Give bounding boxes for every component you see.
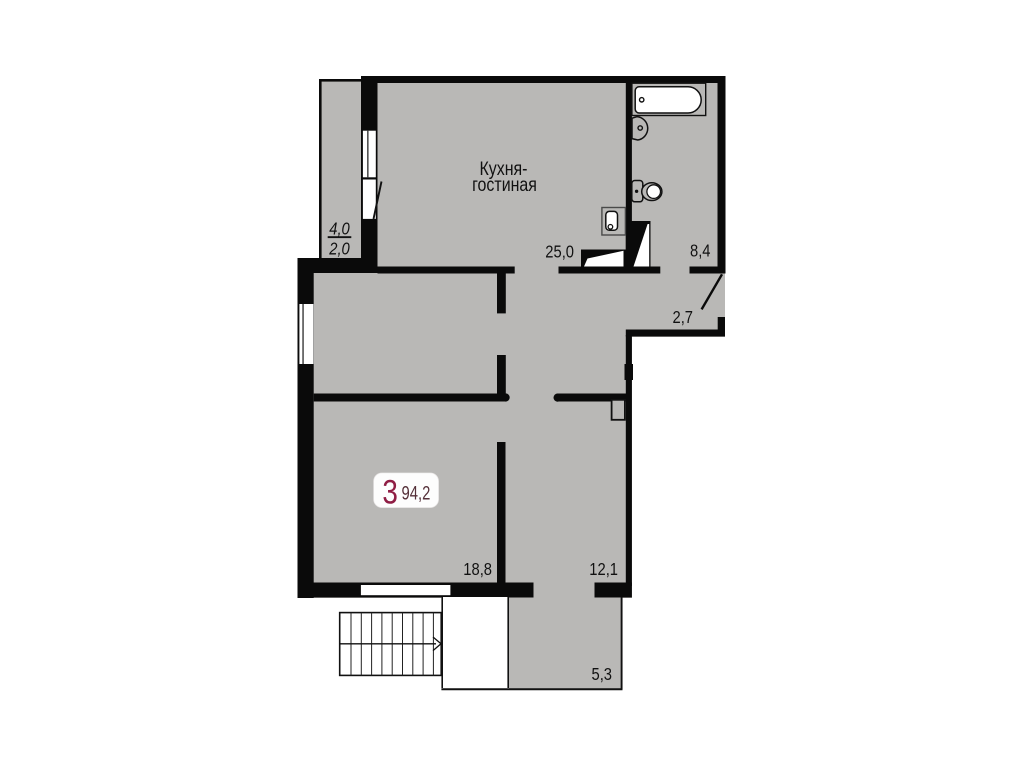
svg-text:25,0: 25,0 <box>545 242 574 262</box>
svg-text:2,0: 2,0 <box>328 239 349 259</box>
svg-text:12,1: 12,1 <box>589 560 618 580</box>
svg-text:4,0: 4,0 <box>329 219 349 239</box>
svg-text:94,2: 94,2 <box>402 481 431 504</box>
svg-text:2,7: 2,7 <box>673 308 693 328</box>
svg-text:3: 3 <box>382 473 398 511</box>
svg-text:5,3: 5,3 <box>592 665 612 685</box>
svg-text:18,8: 18,8 <box>463 560 492 580</box>
svg-text:8,4: 8,4 <box>690 241 710 261</box>
svg-text:гостиная: гостиная <box>472 173 537 195</box>
